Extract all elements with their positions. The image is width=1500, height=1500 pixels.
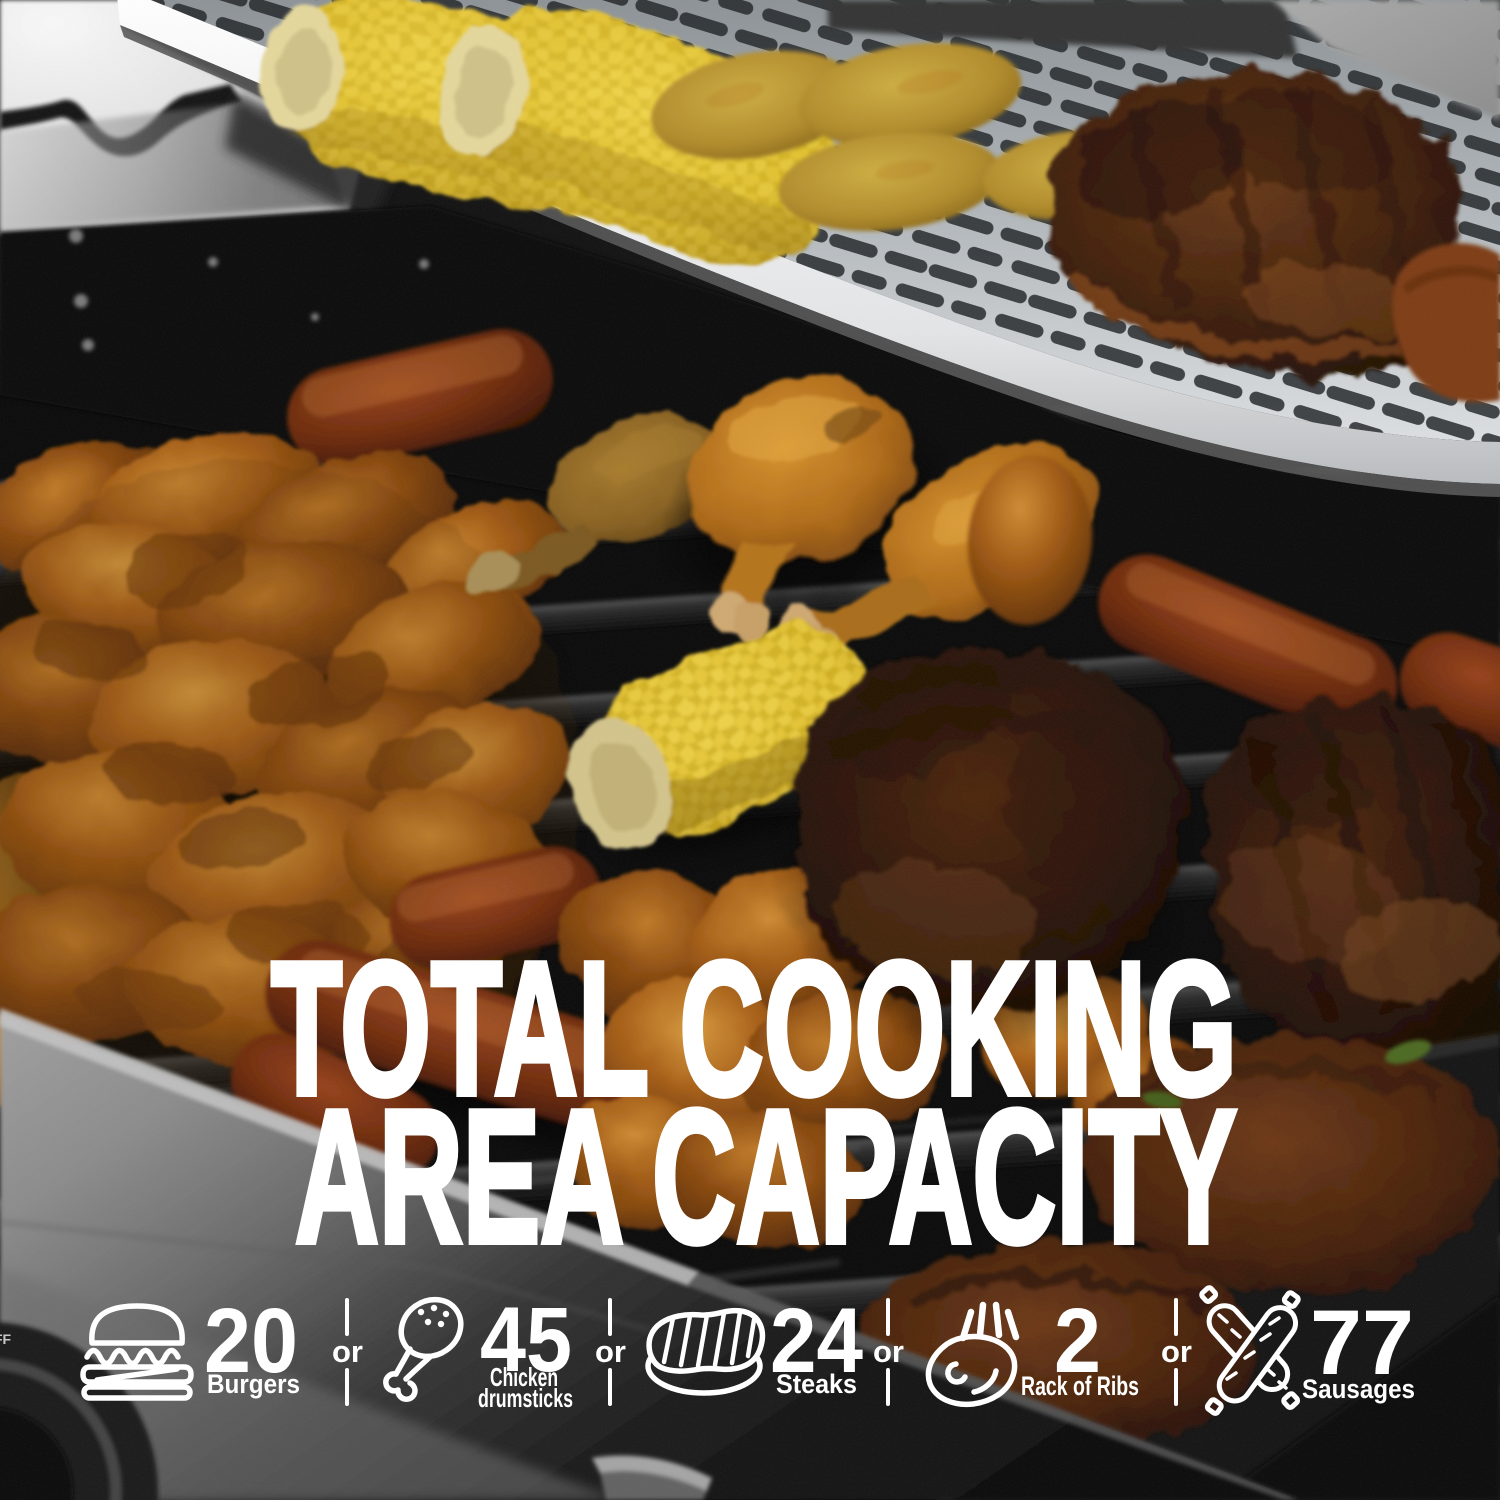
svg-text:AREA CAPACITY: AREA CAPACITY <box>295 1071 1237 1283</box>
svg-text:or: or <box>873 1334 904 1369</box>
svg-text:Sausages: Sausages <box>1302 1374 1415 1404</box>
svg-text:or: or <box>595 1334 626 1369</box>
svg-text:Rack of Ribs: Rack of Ribs <box>1021 1371 1139 1401</box>
svg-text:drumsticks: drumsticks <box>478 1383 573 1413</box>
svg-text:Steaks: Steaks <box>776 1369 857 1399</box>
svg-text:or: or <box>332 1334 363 1369</box>
svg-text:Burgers: Burgers <box>207 1369 300 1399</box>
svg-text:or: or <box>1161 1334 1192 1369</box>
